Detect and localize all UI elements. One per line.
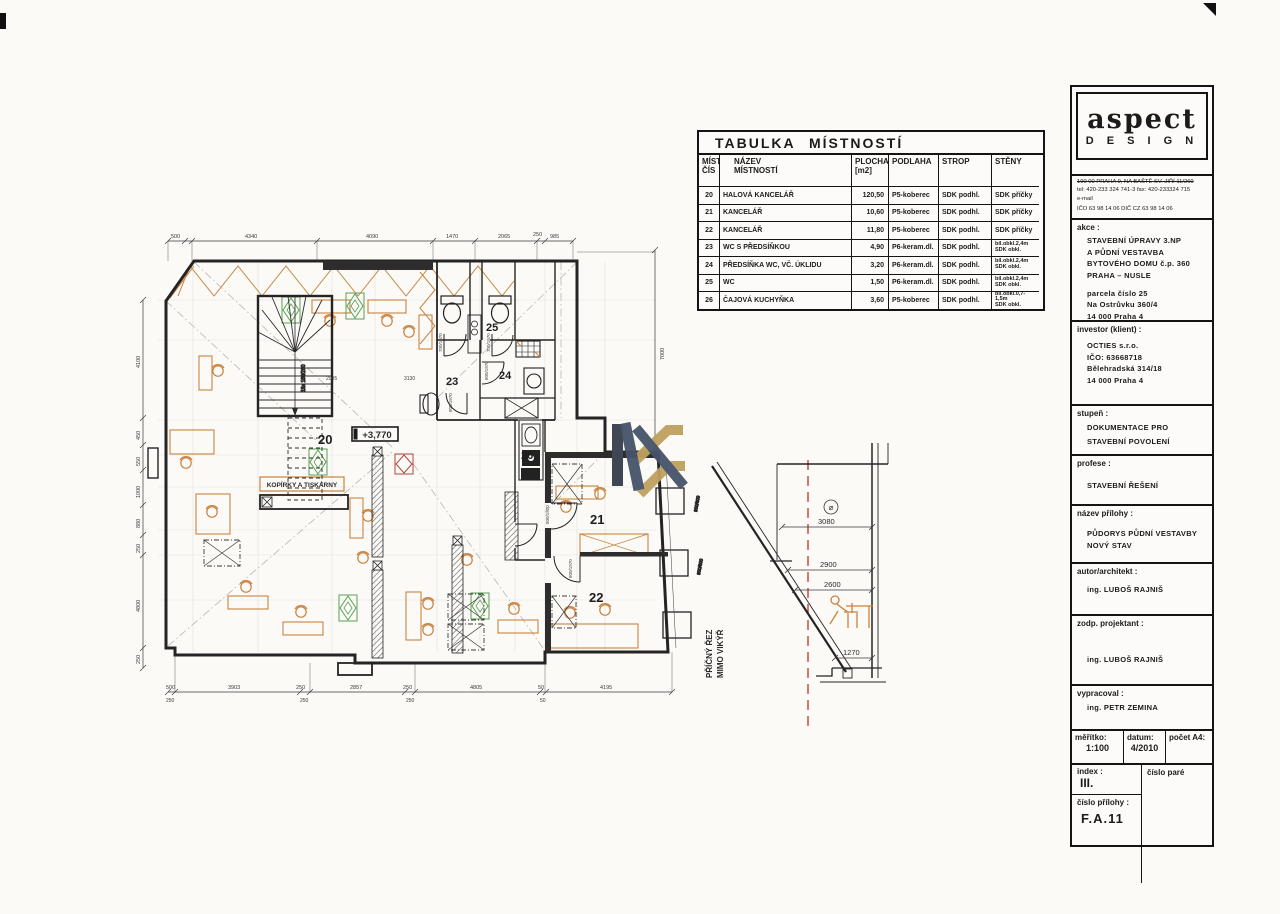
scale-cell: měřítko: 1:100 <box>1072 731 1124 763</box>
svg-text:250: 250 <box>406 698 415 704</box>
room-label-24: 24 <box>499 370 512 382</box>
address-line: 190 00 PRAHA 9, NA BAŠTĚ SV. JIŘÍ 11/260 <box>1077 178 1207 186</box>
cross-section: ⌀ 3080 2900 2600 1270 PŘÍČNÝ ŘEZ MIMO VI… <box>705 443 888 730</box>
svg-text:250: 250 <box>296 685 305 691</box>
floor-plan: KOPÍRKY A TISKÁRNY <box>136 232 704 704</box>
svg-text:550: 550 <box>136 457 142 466</box>
scale-date-row: měřítko: 1:100 datum: 4/2010 počet A4: <box>1072 731 1212 765</box>
x-tables <box>204 464 582 650</box>
table-row: 22 KANCELÁŘ 11,80 P5-koberec SDK podhl. … <box>699 222 1043 240</box>
svg-text:800/1970: 800/1970 <box>545 505 550 524</box>
table-row: 25 WC 1,50 P6-keram.dl. SDK podhl. bíl.o… <box>699 275 1043 293</box>
svg-text:4805: 4805 <box>470 685 482 691</box>
svg-text:800/1970: 800/1970 <box>568 559 573 578</box>
svg-text:700/1970: 700/1970 <box>486 333 491 352</box>
svg-text:1470: 1470 <box>446 234 458 240</box>
table-row: 21 KANCELÁŘ 10,60 P5-koberec SDK podhl. … <box>699 205 1043 223</box>
section-level-top: 3080 <box>818 517 835 526</box>
svg-text:50: 50 <box>540 698 546 704</box>
svg-text:700/1970: 700/1970 <box>438 333 443 352</box>
svg-text:900/600: 900/600 <box>693 495 701 512</box>
svg-text:7000: 7000 <box>660 348 666 360</box>
svg-text:PŘÍČNÝ ŘEZ: PŘÍČNÝ ŘEZ <box>705 629 714 678</box>
svg-text:800/1970: 800/1970 <box>484 361 489 380</box>
room-label-25: 25 <box>486 322 498 334</box>
investor-block: investor (klient) : OCTIES s.r.o. IČO: 6… <box>1072 322 1212 406</box>
svg-text:250: 250 <box>300 698 309 704</box>
room-label-26: 26 <box>521 450 533 462</box>
svg-text:4195: 4195 <box>600 685 612 691</box>
drawing-sheet: KOPÍRKY A TISKÁRNY <box>0 0 1280 914</box>
section-label: PŘÍČNÝ ŘEZ MIMO VIKÝŘ <box>705 629 725 678</box>
responsible-designer-block: zodp. projektant : ing. LUBOŠ RAJNIŠ <box>1072 616 1212 686</box>
svg-text:250: 250 <box>136 544 142 553</box>
room-label-23: 23 <box>446 376 458 388</box>
svg-text:880: 880 <box>136 519 142 528</box>
table-row: 20 HALOVÁ KANCELÁŘ 120,50 P5-koberec SDK… <box>699 187 1043 205</box>
email-line: e-mail <box>1077 195 1207 203</box>
attachment-number-cell: číslo přílohy : F.A.11 <box>1072 795 1141 829</box>
svg-text:4340: 4340 <box>245 234 257 240</box>
date-cell: datum: 4/2010 <box>1124 731 1166 763</box>
a4-count-cell: počet A4: <box>1166 731 1211 763</box>
phone-line: tel: 420-233 324 741-3 fax: 420-233324 7… <box>1077 186 1207 194</box>
stair-note: 19x 180/260 <box>301 364 307 392</box>
table-row: 26 ČAJOVÁ KUCHYŇKA 3,60 P5-koberec SDK p… <box>699 292 1043 309</box>
roof-trusses <box>170 266 514 344</box>
drawn-by-block: vypracoval : ing. PETR ZEMINA <box>1072 686 1212 731</box>
svg-text:+3,770: +3,770 <box>362 430 391 441</box>
title-block: aspect D E S I G N 190 00 PRAHA 9, NA BA… <box>1070 85 1214 847</box>
elevation-marker: +3,770 <box>352 427 398 441</box>
copier-area: KOPÍRKY A TISKÁRNY <box>260 477 348 509</box>
dimension-lines <box>140 238 676 695</box>
svg-text:1270: 1270 <box>843 648 860 657</box>
svg-text:3130: 3130 <box>404 376 415 382</box>
logo-text: aspect <box>1087 106 1197 133</box>
section-person <box>830 596 873 628</box>
svg-text:1000: 1000 <box>136 486 142 498</box>
svg-text:3903: 3903 <box>228 685 240 691</box>
stage-block: stupeň : DOKUMENTACE PRO STAVEBNÍ POVOLE… <box>1072 406 1212 456</box>
room-label-20: 20 <box>318 432 332 447</box>
room-label-22: 22 <box>589 590 603 605</box>
svg-text:2065: 2065 <box>498 234 510 240</box>
bottom-stub <box>338 663 372 675</box>
logo-subtext: D E S I G N <box>1086 135 1198 147</box>
project-block: akce : STAVEBNÍ ÚPRAVY 3.NP A PŮDNÍ VEST… <box>1072 220 1212 322</box>
svg-text:MIMO VIKÝŘ: MIMO VIKÝŘ <box>716 629 725 678</box>
svg-text:2005: 2005 <box>326 376 337 382</box>
svg-text:500: 500 <box>171 234 180 240</box>
table-row: 24 PŘEDSÍŇKA WC, VČ. ÚKLIDU 3,20 P6-kera… <box>699 257 1043 275</box>
room-label-21: 21 <box>590 512 604 527</box>
svg-text:250: 250 <box>166 698 175 704</box>
index-cell: index : III. <box>1072 765 1141 795</box>
attachment-name-block: název přílohy : PŮDORYS PŮDNÍ VESTAVBY N… <box>1072 506 1212 564</box>
svg-text:4100: 4100 <box>136 356 142 368</box>
section-circle-glyph: ⌀ <box>829 503 834 512</box>
room-table-header: MÍSTČÍS NÁZEVMÍSTNOSTÍ PLOCHA[m2] PODLAH… <box>699 155 1043 187</box>
svg-text:450: 450 <box>136 431 142 440</box>
svg-text:2900: 2900 <box>820 560 837 569</box>
registration-line: IČO 63 98 14 06 DIČ CZ 63 98 14 06 <box>1077 205 1207 213</box>
firm-address-block: 190 00 PRAHA 9, NA BAŠTĚ SV. JIŘÍ 11/260… <box>1072 176 1212 220</box>
hatched-piers <box>372 447 518 658</box>
logo-block: aspect D E S I G N <box>1072 92 1212 176</box>
top-ticks <box>165 238 576 261</box>
svg-text:250: 250 <box>136 655 142 664</box>
svg-text:500: 500 <box>166 685 175 691</box>
svg-text:985: 985 <box>550 234 559 240</box>
svg-text:250: 250 <box>533 232 542 238</box>
svg-text:50: 50 <box>538 685 544 691</box>
svg-text:800/1970: 800/1970 <box>448 393 453 412</box>
room-table: TABULKA MÍSTNOSTÍ MÍSTČÍS NÁZEVMÍSTNOSTÍ… <box>697 130 1045 311</box>
svg-text:4090: 4090 <box>366 234 378 240</box>
svg-text:4800: 4800 <box>136 600 142 612</box>
svg-text:2857: 2857 <box>350 685 362 691</box>
svg-text:2600: 2600 <box>824 580 841 589</box>
window-bump-left <box>148 448 158 478</box>
profession-block: profese : STAVEBNÍ ŘEŠENÍ <box>1072 456 1212 506</box>
author-block: autor/architekt : ing. LUBOŠ RAJNIŠ <box>1072 564 1212 616</box>
dimension-texts: 500 4340 4090 1470 2065 250 985 500 3903… <box>136 232 666 704</box>
svg-text:900/600: 900/600 <box>696 558 704 575</box>
index-row: index : III. číslo přílohy : F.A.11 čísl… <box>1072 765 1212 883</box>
room-table-title: TABULKA MÍSTNOSTÍ <box>699 132 1043 155</box>
svg-text:250: 250 <box>403 685 412 691</box>
table-row: 23 WC S PŘEDSÍŇKOU 4,90 P6-keram.dl. SDK… <box>699 240 1043 258</box>
copy-number-cell: číslo paré <box>1142 765 1211 883</box>
